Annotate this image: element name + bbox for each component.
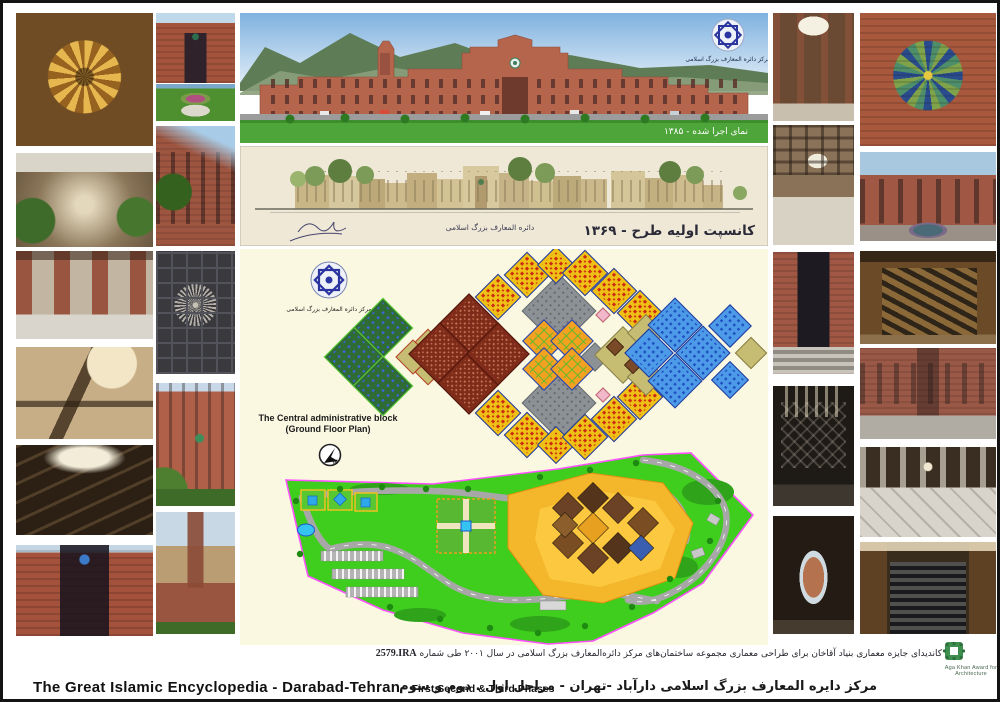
candidacy-text: کاندیدای جایزه معماری بنیاد آقاخان برای …	[420, 649, 942, 659]
fountain-courtyard-facade-photo	[860, 152, 996, 241]
coffered-hall-photo	[773, 125, 854, 245]
panorama-photo: مرکز دائره المعارف بزرگ اسلامی نمای اجرا…	[240, 13, 768, 143]
presentation-board: مرکز دائره المعارف بزرگ اسلامی نمای اجرا…	[0, 0, 1000, 702]
coffered-ceiling-rosette-photo	[156, 251, 235, 374]
pond	[298, 524, 315, 536]
flower-planter-photo	[156, 84, 235, 121]
west-pavilions	[301, 490, 377, 511]
candidacy-number: 2579.IRA	[376, 648, 417, 659]
plans-panel: مرکز دائره المعارف بزرگ اسلامی The Centr…	[240, 249, 768, 645]
wood-rosette-ceiling-photo	[16, 13, 153, 146]
brick-building-trees-photo	[156, 126, 235, 246]
elevation-caption: کانسپت اولیه طرح - ۱۳۶۹	[583, 223, 755, 239]
svg-text:N: N	[333, 459, 338, 466]
entrance-low-angle-photo	[16, 545, 153, 636]
metal-grille-interior-photo	[773, 386, 854, 506]
title-main: The Great Islamic Encyclopedia - Darabad…	[33, 679, 406, 696]
curved-brick-courtyard-photo	[860, 348, 996, 439]
wooden-staircase-photo	[860, 251, 996, 344]
panorama-caption: نمای اجرا شده - ۱۳۸۵	[664, 127, 748, 137]
award-candidacy-line: کاندیدای جایزه معماری بنیاد آقاخان برای …	[376, 648, 942, 659]
board-title-persian: مرکز دایره المعارف بزرگ اسلامی دارآباد -…	[399, 679, 877, 694]
aga-khan-award-icon	[939, 641, 969, 664]
garden-corridor-photo	[16, 153, 153, 247]
tower-mountain-photo	[156, 512, 235, 634]
ornate-staircase-photo	[16, 347, 153, 439]
facade-emblem-photo	[156, 383, 235, 506]
ceramic-tile-rosette-photo	[860, 13, 996, 146]
brick-entrance-facade-photo	[156, 13, 235, 83]
floor-plan-label-line2: (Ground Floor Plan)	[286, 424, 371, 434]
floor-plan-logo-icon	[311, 262, 347, 298]
aga-khan-award-block: Aga Khan Award for Architecture	[939, 641, 1000, 677]
north-arrow-icon: N	[320, 445, 341, 467]
floor-plan-label-line1: The Central administrative block	[258, 413, 398, 423]
elevation-calligraphy: دائره المعارف بزرگ اسلامی	[446, 222, 534, 232]
encyclopedia-logo-icon	[712, 19, 744, 51]
marble-lobby-photo	[860, 447, 996, 537]
floor-plan-logo-caption: مرکز دائره المعارف بزرگ اسلامی	[286, 304, 371, 313]
arched-courtyard-view-photo	[773, 516, 854, 634]
marble-steps-entrance-photo	[773, 252, 854, 374]
concept-elevation-drawing: دائره المعارف بزرگ اسلامی کانسپت اولیه ط…	[240, 146, 768, 246]
skylight-lobby-photo	[773, 13, 854, 121]
grand-staircase-photo	[860, 542, 996, 634]
stairwell-skylight-photo	[16, 445, 153, 535]
formal-garden	[437, 499, 495, 553]
atrium-lobby-photo	[16, 251, 153, 339]
award-org-name: Aga Khan Award for Architecture	[939, 665, 1000, 677]
panorama-logo-caption: مرکز دائره المعارف بزرگ اسلامی	[685, 54, 768, 63]
